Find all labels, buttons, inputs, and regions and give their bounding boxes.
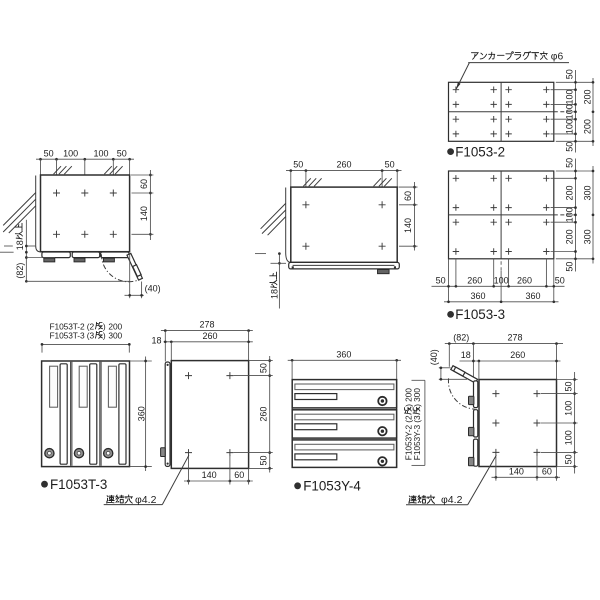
- svg-text:100: 100: [564, 104, 574, 119]
- svg-text:278: 278: [507, 333, 522, 343]
- svg-text:F1053Y-3 (3: F1053Y-3 (3: [412, 415, 422, 460]
- svg-text:50: 50: [563, 381, 573, 391]
- svg-text:360: 360: [137, 406, 147, 421]
- svg-text:50: 50: [564, 158, 574, 168]
- svg-text:60: 60: [139, 179, 149, 189]
- svg-text:50: 50: [555, 275, 565, 285]
- svg-text:18: 18: [461, 350, 471, 360]
- svg-text:300: 300: [412, 388, 422, 402]
- svg-text:100: 100: [564, 207, 574, 222]
- svg-text:50: 50: [293, 160, 303, 170]
- svg-text:300: 300: [583, 185, 593, 200]
- svg-text:F1053T-3: F1053T-3: [50, 477, 107, 492]
- svg-text:100: 100: [563, 430, 573, 445]
- svg-text:50: 50: [564, 69, 574, 79]
- svg-text:200: 200: [583, 119, 593, 134]
- svg-text:260: 260: [517, 275, 532, 285]
- svg-text:100: 100: [564, 89, 574, 104]
- svg-text:60: 60: [542, 466, 552, 476]
- svg-text:140: 140: [509, 466, 524, 476]
- svg-text:50: 50: [117, 148, 127, 158]
- svg-text:(40): (40): [145, 284, 161, 294]
- svg-text:50: 50: [44, 148, 54, 158]
- svg-text:φ4.2: φ4.2: [441, 494, 463, 506]
- svg-text:(82): (82): [15, 263, 25, 279]
- svg-text:260: 260: [202, 331, 217, 341]
- svg-text:100: 100: [93, 148, 108, 158]
- svg-text:200: 200: [583, 89, 593, 104]
- svg-text:360: 360: [470, 291, 485, 301]
- svg-text:50: 50: [385, 160, 395, 170]
- svg-text:200: 200: [564, 185, 574, 200]
- svg-text:φ6: φ6: [551, 51, 564, 62]
- svg-text:(40): (40): [429, 349, 439, 365]
- svg-text:140: 140: [139, 206, 149, 221]
- svg-text:F1053T-3 (3: F1053T-3 (3: [50, 331, 95, 341]
- svg-text:50: 50: [258, 455, 268, 465]
- svg-text:260: 260: [510, 350, 525, 360]
- svg-text:60: 60: [403, 191, 413, 201]
- svg-text:(82): (82): [453, 333, 469, 343]
- svg-text:50: 50: [564, 142, 574, 152]
- svg-text:140: 140: [202, 470, 217, 480]
- svg-text:260: 260: [467, 275, 482, 285]
- svg-text:F1053Y-4: F1053Y-4: [303, 479, 361, 494]
- svg-text:18: 18: [15, 240, 25, 250]
- svg-text:): ): [412, 404, 422, 407]
- svg-text:60: 60: [234, 470, 244, 480]
- svg-text:100: 100: [564, 119, 574, 134]
- svg-text:50: 50: [436, 275, 446, 285]
- svg-text:100: 100: [63, 148, 78, 158]
- svg-text:100: 100: [563, 401, 573, 416]
- svg-text:F1053-2: F1053-2: [455, 144, 505, 159]
- svg-text:200: 200: [564, 229, 574, 244]
- svg-text:18: 18: [269, 289, 279, 299]
- svg-text:50: 50: [258, 363, 268, 373]
- svg-text:): ): [103, 331, 106, 341]
- svg-text:360: 360: [525, 291, 540, 301]
- svg-text:18: 18: [151, 335, 161, 345]
- svg-text:300: 300: [108, 331, 122, 341]
- svg-text:140: 140: [403, 218, 413, 233]
- svg-text:φ4.2: φ4.2: [135, 494, 157, 506]
- svg-text:360: 360: [336, 349, 351, 359]
- svg-text:260: 260: [336, 160, 351, 170]
- svg-text:100: 100: [494, 275, 509, 285]
- svg-text:300: 300: [583, 229, 593, 244]
- svg-text:F1053-3: F1053-3: [455, 307, 505, 322]
- svg-text:260: 260: [258, 407, 268, 422]
- svg-text:50: 50: [563, 454, 573, 464]
- svg-text:50: 50: [564, 262, 574, 272]
- svg-text:278: 278: [199, 320, 214, 330]
